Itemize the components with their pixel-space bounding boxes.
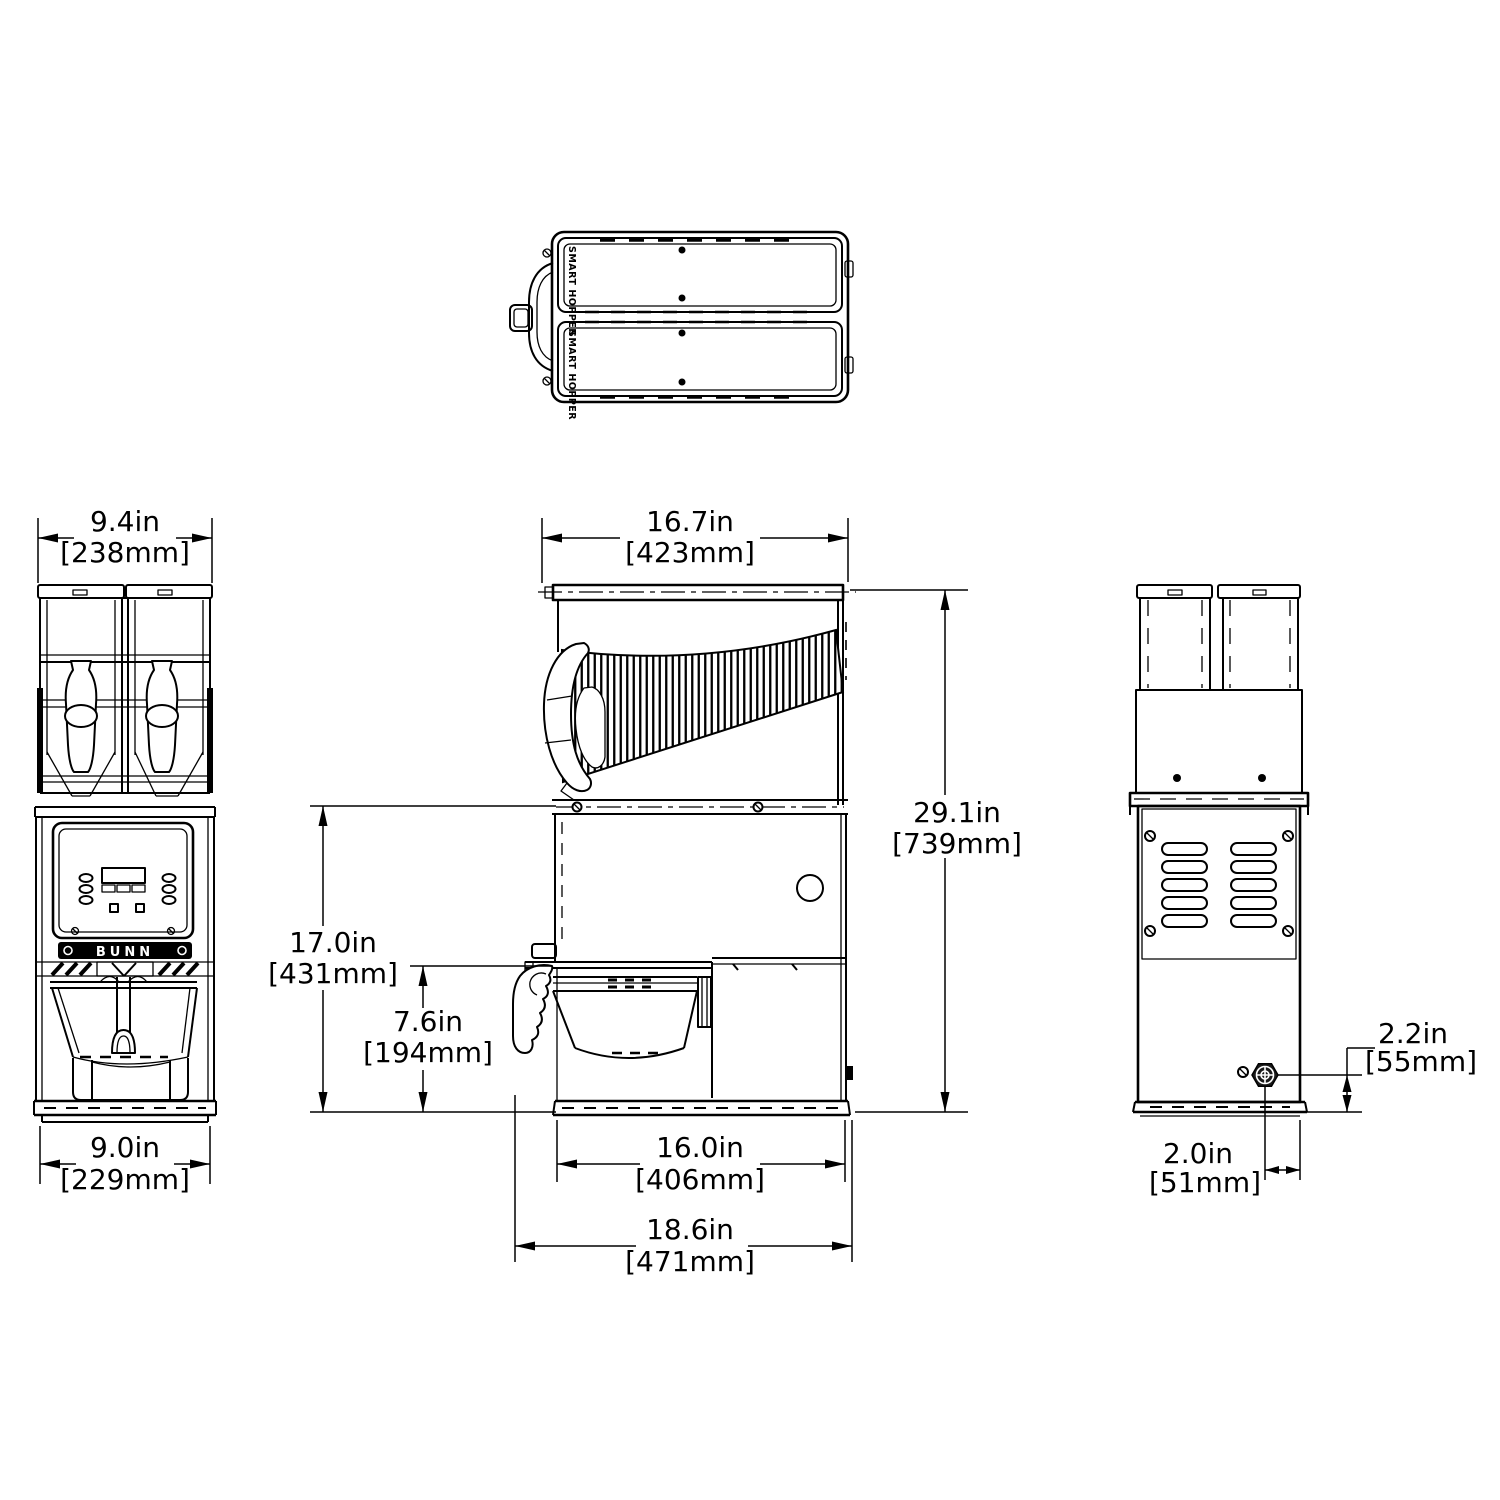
dim-depth-base-in: 16.0in bbox=[656, 1131, 744, 1164]
rear-stub bbox=[846, 1066, 853, 1080]
front-lid-left bbox=[38, 585, 124, 598]
side-view bbox=[513, 585, 856, 1115]
side-lower-body bbox=[557, 958, 853, 1101]
agitator-paddle-left bbox=[65, 661, 97, 772]
brand-logo: BUNN bbox=[96, 945, 154, 960]
rear-upper-panel bbox=[1136, 690, 1302, 793]
side-knob[interactable] bbox=[797, 875, 823, 901]
side-funnel-rail bbox=[525, 944, 712, 977]
display-key-3[interactable] bbox=[132, 885, 145, 892]
funnel-grip-handle[interactable] bbox=[513, 965, 552, 1053]
panel-button-right-1[interactable] bbox=[163, 874, 176, 882]
panel-button-right-2[interactable] bbox=[163, 885, 176, 893]
rear-view bbox=[1130, 585, 1308, 1116]
dim-depth-base-mm: [406mm] bbox=[635, 1163, 765, 1196]
front-base bbox=[34, 1101, 216, 1122]
dim-depth-top-in: 16.7in bbox=[646, 505, 734, 538]
dim-front-top-width-mm: [238mm] bbox=[60, 536, 190, 569]
dim-depth-base: 16.0in [406mm] bbox=[557, 1120, 845, 1196]
vent-panel-screws bbox=[1145, 831, 1293, 936]
side-funnel[interactable] bbox=[513, 965, 711, 1058]
dim-front-base-width-mm: [229mm] bbox=[60, 1163, 190, 1196]
top-handle bbox=[510, 249, 553, 385]
dim-front-base-width: 9.0in [229mm] bbox=[40, 1126, 210, 1196]
dim-funnel-clearance-in: 7.6in bbox=[393, 1005, 463, 1038]
dim-height-overall-in: 29.1in bbox=[913, 796, 1001, 829]
rear-lower-body bbox=[1138, 806, 1300, 1102]
rear-lid-left bbox=[1137, 585, 1212, 598]
rear-lid-right bbox=[1218, 585, 1300, 598]
front-funnel[interactable] bbox=[50, 977, 197, 1065]
brand-bar: BUNN bbox=[58, 942, 192, 960]
grinder-dimension-drawing: SMART HOPPER SMART HOPPER bbox=[0, 0, 1500, 1500]
front-hoppers bbox=[37, 598, 213, 796]
dim-cord-height: 2.2in [55mm] bbox=[1277, 1017, 1477, 1112]
dim-depth-overall-in: 18.6in bbox=[646, 1213, 734, 1246]
dim-height-overall-mm: [739mm] bbox=[892, 827, 1022, 860]
dim-height-to-hopper-base-in: 17.0in bbox=[289, 926, 377, 959]
panel-button-left-2[interactable] bbox=[80, 885, 93, 893]
hopper-lid-left-top bbox=[558, 238, 842, 312]
rear-hoppers bbox=[1140, 598, 1298, 690]
dim-cord-offset-mm: [51mm] bbox=[1149, 1166, 1261, 1199]
side-base bbox=[553, 1101, 850, 1115]
top-view: SMART HOPPER SMART HOPPER bbox=[510, 232, 853, 420]
dim-depth-top: 16.7in [423mm] bbox=[542, 505, 848, 583]
dim-height-overall: 29.1in [739mm] bbox=[850, 590, 1022, 1112]
panel-button-left-1[interactable] bbox=[80, 874, 93, 882]
funnel-hanger bbox=[698, 977, 711, 1027]
hopper-side-trim-right bbox=[207, 688, 213, 793]
panel-button-right-3[interactable] bbox=[163, 896, 176, 904]
dim-front-base-width-in: 9.0in bbox=[90, 1131, 160, 1164]
rear-ledge bbox=[1130, 793, 1308, 815]
dim-front-top-width-in: 9.4in bbox=[90, 505, 160, 538]
dim-depth-overall-mm: [471mm] bbox=[625, 1245, 755, 1278]
side-seam-band bbox=[552, 800, 848, 814]
top-view-outline bbox=[552, 232, 848, 402]
front-funnel-rail bbox=[36, 962, 214, 976]
side-hopper bbox=[544, 600, 846, 805]
control-panel bbox=[53, 823, 193, 938]
hopper-lid-label-2: SMART HOPPER bbox=[566, 330, 577, 420]
lid-rivets bbox=[679, 247, 686, 386]
rear-base bbox=[1133, 1102, 1307, 1116]
display-key-1[interactable] bbox=[102, 885, 115, 892]
display bbox=[102, 868, 145, 883]
dim-height-to-hopper-base-mm: [431mm] bbox=[268, 957, 398, 990]
panel-square-button-2[interactable] bbox=[136, 904, 144, 912]
panel-button-left-3[interactable] bbox=[80, 896, 93, 904]
dim-funnel-clearance-mm: [194mm] bbox=[363, 1036, 493, 1069]
hopper-side-trim-left bbox=[37, 688, 43, 793]
display-key-2[interactable] bbox=[117, 885, 130, 892]
vent-louvers bbox=[1162, 843, 1276, 927]
front-lid-right bbox=[126, 585, 212, 598]
dim-front-top-width: 9.4in [238mm] bbox=[38, 505, 212, 583]
power-connector bbox=[1238, 1064, 1278, 1087]
technical-drawing-canvas: SMART HOPPER SMART HOPPER bbox=[0, 0, 1500, 1500]
dim-depth-top-mm: [423mm] bbox=[625, 536, 755, 569]
front-view: BUNN bbox=[34, 585, 216, 1122]
panel-square-button-1[interactable] bbox=[110, 904, 118, 912]
dim-cord-height-mm: [55mm] bbox=[1365, 1045, 1477, 1078]
agitator-paddle-right bbox=[146, 661, 178, 772]
hopper-lid-right-top bbox=[558, 322, 842, 396]
hopper-lid-label-1: SMART HOPPER bbox=[566, 246, 577, 336]
vent-panel bbox=[1142, 809, 1296, 959]
